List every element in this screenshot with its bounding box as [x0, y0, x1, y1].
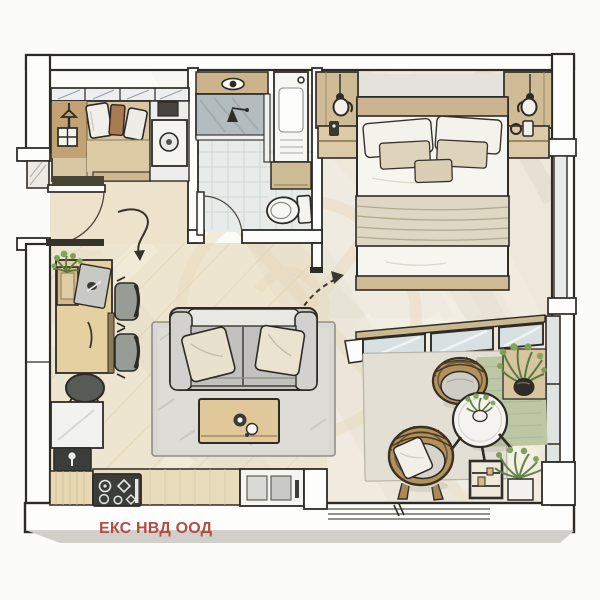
svg-text:ЕКС НВД ООД: ЕКС НВД ООД: [99, 520, 213, 537]
